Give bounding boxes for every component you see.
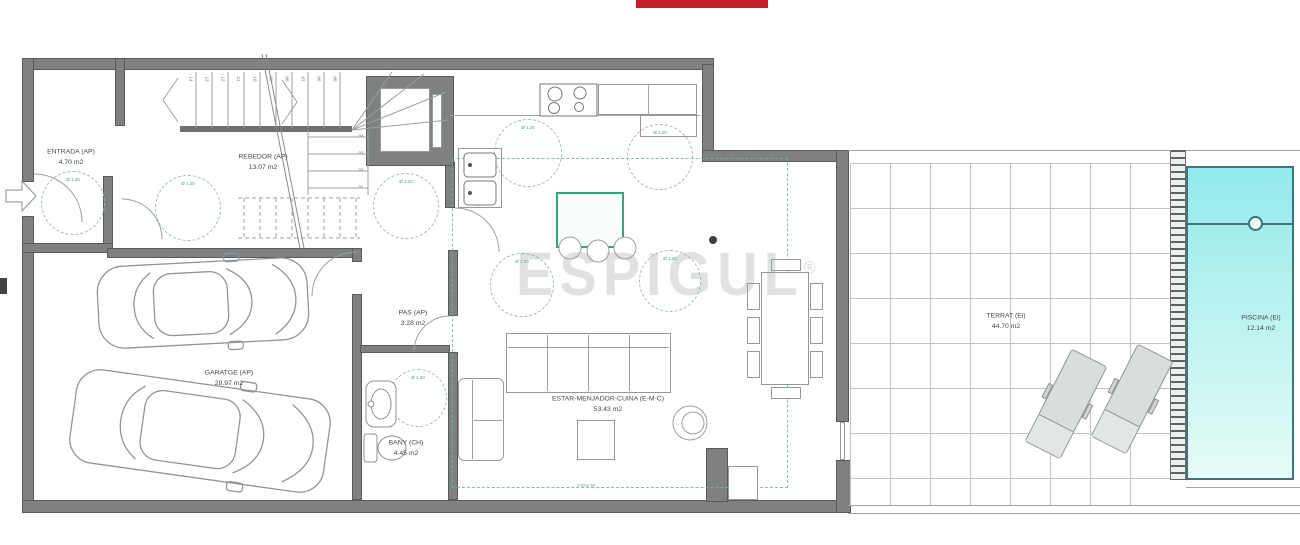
- coffee-table: [577, 420, 615, 460]
- room-label-pas: PAS (AP) 3.28 m2: [399, 307, 428, 328]
- room-name: PISCINA (Ei): [1241, 312, 1280, 323]
- entrance-arrow-icon: [6, 181, 36, 211]
- stair-step-number: 02: [359, 168, 364, 173]
- floorplan-canvas: 14 13 12 11 10 09 08 07 06 05 04 03 02 0…: [0, 0, 1300, 545]
- wall-left-upper: [22, 58, 34, 182]
- stair-step-number: 01: [359, 185, 364, 190]
- stair-step-number: 07: [301, 76, 306, 81]
- diameter-label: Ø 1.20: [411, 375, 425, 380]
- dining-chair: [771, 387, 801, 399]
- diameter-label: Ø 1.20: [66, 177, 80, 182]
- terrace-top-line: [848, 150, 1300, 151]
- turning-circle: Ø 1.20: [155, 175, 221, 241]
- room-name: ESTAR-MENJADOR-CUINA (E-M-C): [552, 393, 664, 404]
- kitchen-cabinet-divider: [648, 84, 649, 115]
- room-label-rebedor: REBEDOR (AP) 13.07 m2: [238, 151, 287, 172]
- wall-bany-top: [360, 345, 450, 353]
- room-name: ENTRADA (AP): [47, 146, 95, 157]
- turning-circle: Ø 1.20: [389, 369, 447, 427]
- terrace-door: [840, 422, 845, 460]
- terrace-bottom-line-2: [848, 513, 1300, 514]
- wall-step-vertical: [702, 64, 714, 156]
- room-area: 53.43 m2: [552, 404, 664, 415]
- stair-landing-edge: [180, 126, 352, 132]
- dining-chair: [747, 317, 760, 344]
- living-dimension-note: 2.60x2.60: [577, 483, 595, 488]
- room-area: 28.97 m2: [205, 378, 253, 389]
- dining-chair: [810, 351, 823, 378]
- room-area: 12.14 m2: [1241, 323, 1280, 334]
- stair-step-number: 06: [317, 76, 322, 81]
- sofa-cushion-divider: [547, 335, 548, 391]
- stair-step-number: 09: [269, 76, 274, 81]
- diameter-label: Ø 1.20: [653, 130, 667, 135]
- room-area: 4.45 m2: [389, 448, 424, 459]
- terrace-tiles: [850, 163, 1170, 505]
- turning-circle: Ø 1.20: [627, 124, 693, 190]
- pool-edge-hatch: [1170, 150, 1186, 480]
- stair-step-number: 14: [189, 76, 194, 81]
- room-area: 13.07 m2: [238, 162, 287, 173]
- stove: [540, 84, 597, 116]
- car-2: [66, 359, 335, 504]
- room-area: 44.70 m2: [986, 321, 1025, 332]
- room-label-estar: ESTAR-MENJADOR-CUINA (E-M-C) 53.43 m2: [552, 393, 664, 414]
- left-edge-mark: [0, 278, 7, 294]
- pool-lane-line: [1188, 223, 1292, 225]
- diameter-label: Ø 1.20: [399, 179, 413, 184]
- armchair-back-line: [472, 380, 473, 459]
- watermark: ESPIGUL®: [516, 238, 816, 310]
- terrace-step: [728, 466, 758, 500]
- room-label-garatge: GARATGE (AP) 28.97 m2: [205, 367, 253, 388]
- wall-right-upper: [836, 150, 849, 422]
- stair-step-number: 13: [205, 76, 210, 81]
- room-label-bany: BANY (CH) 4.45 m2: [389, 437, 424, 458]
- understair-dashed-flight: [238, 198, 360, 238]
- room-area: 3.28 m2: [399, 318, 428, 329]
- stair-step-number: 11: [236, 77, 241, 82]
- room-area: 4.70 m2: [47, 157, 95, 168]
- wall-left-lower: [22, 216, 34, 513]
- stair-step-number: 04: [359, 134, 364, 139]
- elevator-door-rail: [432, 94, 442, 148]
- car-1: [96, 250, 311, 357]
- room-name: GARATGE (AP): [205, 367, 253, 378]
- diameter-label: Ø 1.20: [181, 181, 195, 186]
- stair-step-number: 03: [359, 151, 364, 156]
- room-name: BANY (CH): [389, 437, 424, 448]
- sofa-cushion-divider: [629, 335, 630, 391]
- room-name: TERRAT (Ei): [986, 310, 1025, 321]
- stair-step-number: 08: [285, 76, 290, 81]
- room-name: REBEDOR (AP): [238, 151, 287, 162]
- turning-circle: Ø 1.20: [494, 119, 562, 187]
- dishwasher-note: rentaplats: [469, 202, 487, 207]
- wall-top-main: [22, 58, 714, 70]
- room-label-terrat: TERRAT (Ei) 44.70 m2: [986, 310, 1025, 331]
- sofa-cushion-divider: [588, 335, 589, 391]
- wall-garage-top: [107, 248, 360, 258]
- turning-circle: Ø 1.20: [41, 171, 105, 235]
- elevator-cabin: [380, 88, 430, 152]
- room-label-piscina: PISCINA (Ei) 12.14 m2: [1241, 312, 1280, 333]
- registered-mark: ®: [804, 259, 816, 278]
- stair-step-number: 10: [253, 76, 258, 81]
- stair-step-number: 05: [333, 76, 338, 81]
- turning-circle: Ø 1.20: [373, 173, 439, 239]
- top-red-banner: [636, 0, 768, 8]
- dining-chair: [747, 351, 760, 378]
- armchair-divider: [474, 420, 502, 421]
- pool-bottom-line: [1186, 487, 1300, 488]
- stair-step-number: 12: [221, 76, 226, 81]
- terrace-bottom-line: [848, 505, 1300, 506]
- wall-pas-stub: [352, 248, 362, 262]
- diameter-label: Ø 1.20: [521, 125, 535, 130]
- room-name: PAS (AP): [399, 307, 428, 318]
- wall-entrada-stub: [103, 176, 113, 253]
- pool-ring: [1248, 216, 1263, 231]
- watermark-text: ESPIGUL: [516, 239, 804, 308]
- wall-garage-right: [352, 294, 362, 500]
- dining-chair: [810, 317, 823, 344]
- wall-entrada-bottom: [22, 243, 113, 253]
- wall-entrada-divider: [115, 58, 125, 126]
- room-label-entrada: ENTRADA (AP) 4.70 m2: [47, 146, 95, 167]
